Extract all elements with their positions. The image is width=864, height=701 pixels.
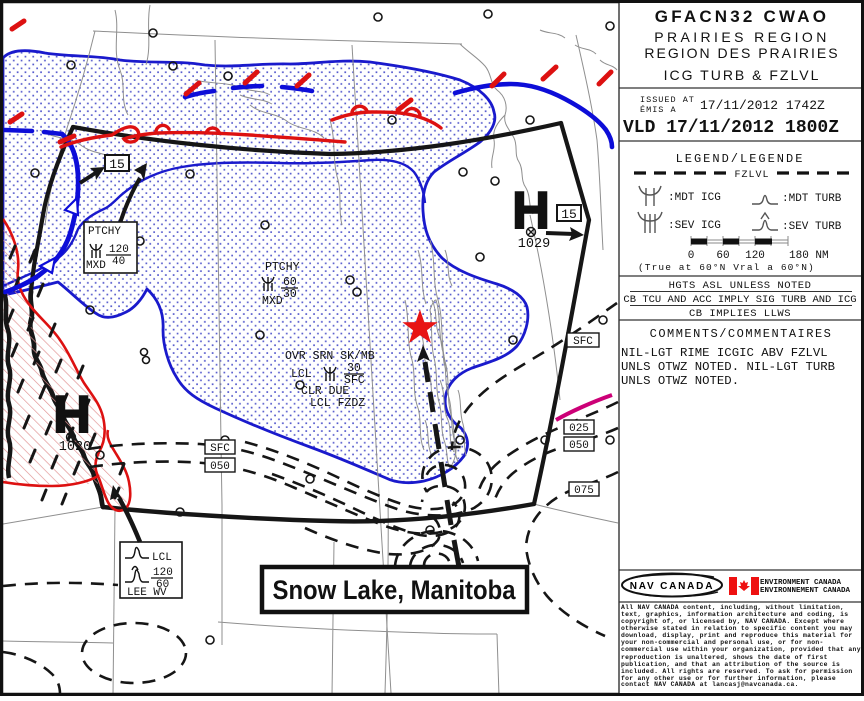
svg-text:otherwise stated in relation t: otherwise stated in relation to specific… [621,625,853,632]
svg-text:NIL-LGT RIME ICGIC ABV FZLVL: NIL-LGT RIME ICGIC ABV FZLVL [621,346,828,360]
svg-text:reproduction is unaltered, sho: reproduction is unaltered, shows the dat… [621,654,828,661]
svg-text:CB IMPLIES LLWS: CB IMPLIES LLWS [689,308,791,320]
svg-text:ENVIRONNEMENT CANADA: ENVIRONNEMENT CANADA [760,587,851,595]
svg-text:publication, and that an attri: publication, and that an attribution of … [621,661,840,668]
svg-text:LEGEND/LEGENDE: LEGEND/LEGENDE [676,152,805,166]
svg-text:UNLS OTWZ NOTED. NIL-LGT TURB: UNLS OTWZ NOTED. NIL-LGT TURB [621,360,835,374]
svg-text:HGTS ASL UNLESS NOTED: HGTS ASL UNLESS NOTED [669,280,812,292]
svg-text:30: 30 [283,288,297,301]
svg-text:REGION DES PRAIRIES: REGION DES PRAIRIES [644,45,839,61]
svg-text:OVR SRN SK/MB: OVR SRN SK/MB [285,350,375,363]
svg-text:commercial use within your org: commercial use within your organization,… [621,646,861,653]
svg-text:text, graphics, information ar: text, graphics, information architecture… [621,611,848,618]
svg-text:17/11/2012 1742Z: 17/11/2012 1742Z [700,98,825,113]
svg-text:025: 025 [569,423,589,435]
svg-text:ENVIRONMENT CANADA: ENVIRONMENT CANADA [760,579,842,587]
svg-text:180 NM: 180 NM [789,250,829,262]
svg-text:PTCHY: PTCHY [88,226,121,238]
svg-text:MXD: MXD [262,295,283,308]
svg-text:LCL: LCL [152,552,172,564]
svg-text:075: 075 [574,485,594,497]
svg-text::MDT TURB: :MDT TURB [782,193,842,205]
svg-text::MDT ICG: :MDT ICG [668,192,721,204]
svg-text:VLD 17/11/2012 1800Z: VLD 17/11/2012 1800Z [623,118,839,138]
svg-text:050: 050 [569,440,589,452]
svg-text:1029: 1029 [518,237,550,252]
svg-text::SEV TURB: :SEV TURB [782,221,842,233]
svg-text:LEE WV: LEE WV [127,587,167,599]
svg-text:UNLS OTWZ NOTED.: UNLS OTWZ NOTED. [621,374,739,388]
svg-text:COMMENTS/COMMENTAIRES: COMMENTS/COMMENTAIRES [650,327,833,341]
svg-text:40: 40 [112,256,125,268]
svg-text:15: 15 [561,207,577,222]
svg-text:ISSUED AT: ISSUED AT [640,95,695,105]
svg-text:contact NAV CANADA at lancasj@: contact NAV CANADA at lancasj@navcanada.… [621,681,799,688]
svg-text:MXD: MXD [86,260,106,272]
svg-text:LCL: LCL [291,368,312,381]
svg-text:download, display, print and r: download, display, print and reproduce t… [621,632,853,639]
svg-text:PTCHY: PTCHY [265,261,300,274]
svg-text:SFC: SFC [573,336,593,348]
svg-text:SFC: SFC [210,443,230,455]
svg-text:120: 120 [153,567,173,579]
svg-text:copyright of, or licensed by,: copyright of, or licensed by, NAV CANADA… [621,618,844,625]
svg-text:ÉMIS A: ÉMIS A [640,104,677,115]
svg-text:NAV CANADA: NAV CANADA [630,581,714,592]
svg-text:All NAV CANADA content, includ: All NAV CANADA content, including, witho… [621,604,844,611]
svg-text:GFACN32 CWAO: GFACN32 CWAO [655,7,829,26]
svg-text:120: 120 [745,250,765,262]
svg-text:050: 050 [210,461,230,473]
svg-text:ICG TURB & FZLVL: ICG TURB & FZLVL [664,67,821,83]
svg-text:included. All rights are reser: included. All rights are reserved. To as… [621,668,853,675]
svg-text:PRAIRIES REGION: PRAIRIES REGION [654,29,829,45]
svg-text:(True at 60°N Vral a 60°N): (True at 60°N Vral a 60°N) [638,262,815,273]
svg-text:0: 0 [688,250,695,262]
svg-text:60: 60 [716,250,729,262]
svg-text:your non-commercial and person: your non-commercial and personal use, or… [621,639,824,646]
svg-text:Snow Lake, Manitoba: Snow Lake, Manitoba [273,575,516,605]
svg-text:FZLVL: FZLVL [734,170,769,181]
svg-text:CB TCU AND ACC IMPLY SIG TURB: CB TCU AND ACC IMPLY SIG TURB AND ICG [623,294,856,306]
svg-text:120: 120 [109,244,129,256]
svg-text::SEV ICG: :SEV ICG [668,220,721,232]
svg-text:15: 15 [109,157,125,172]
svg-text:1020: 1020 [59,440,91,455]
svg-text:LCL FZDZ: LCL FZDZ [310,397,365,410]
